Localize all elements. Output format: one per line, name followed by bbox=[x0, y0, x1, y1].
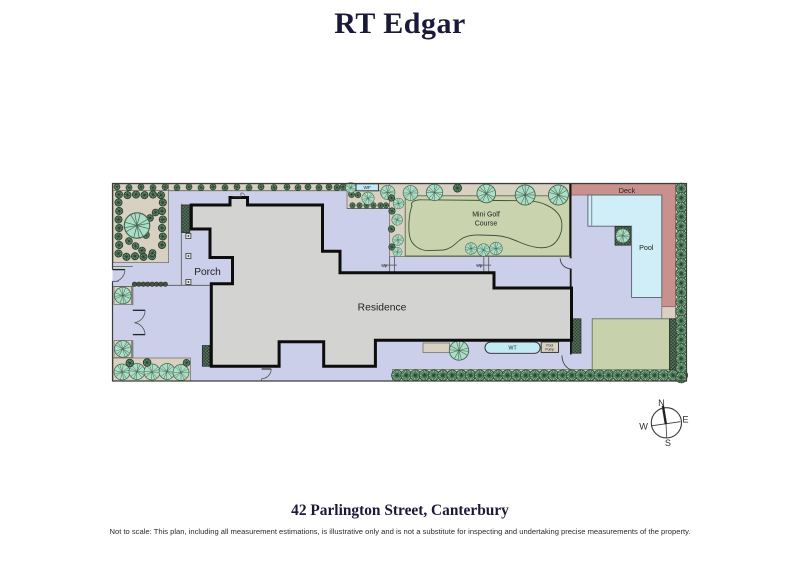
svg-text:WT: WT bbox=[509, 346, 518, 352]
svg-text:Up: Up bbox=[381, 263, 387, 268]
svg-text:E: E bbox=[682, 414, 688, 424]
svg-text:Pool: Pool bbox=[639, 243, 654, 252]
svg-text:N: N bbox=[658, 398, 665, 408]
svg-text:Deck: Deck bbox=[619, 186, 636, 195]
svg-text:WF: WF bbox=[363, 185, 371, 191]
svg-text:Course: Course bbox=[475, 220, 498, 227]
svg-text:Mini Golf: Mini Golf bbox=[472, 212, 500, 219]
svg-text:Up: Up bbox=[476, 263, 482, 268]
svg-text:Pump: Pump bbox=[545, 347, 554, 351]
svg-text:W: W bbox=[639, 422, 648, 432]
svg-text:S: S bbox=[665, 438, 671, 448]
svg-text:Porch: Porch bbox=[194, 267, 221, 278]
svg-text:Residence: Residence bbox=[358, 303, 407, 314]
